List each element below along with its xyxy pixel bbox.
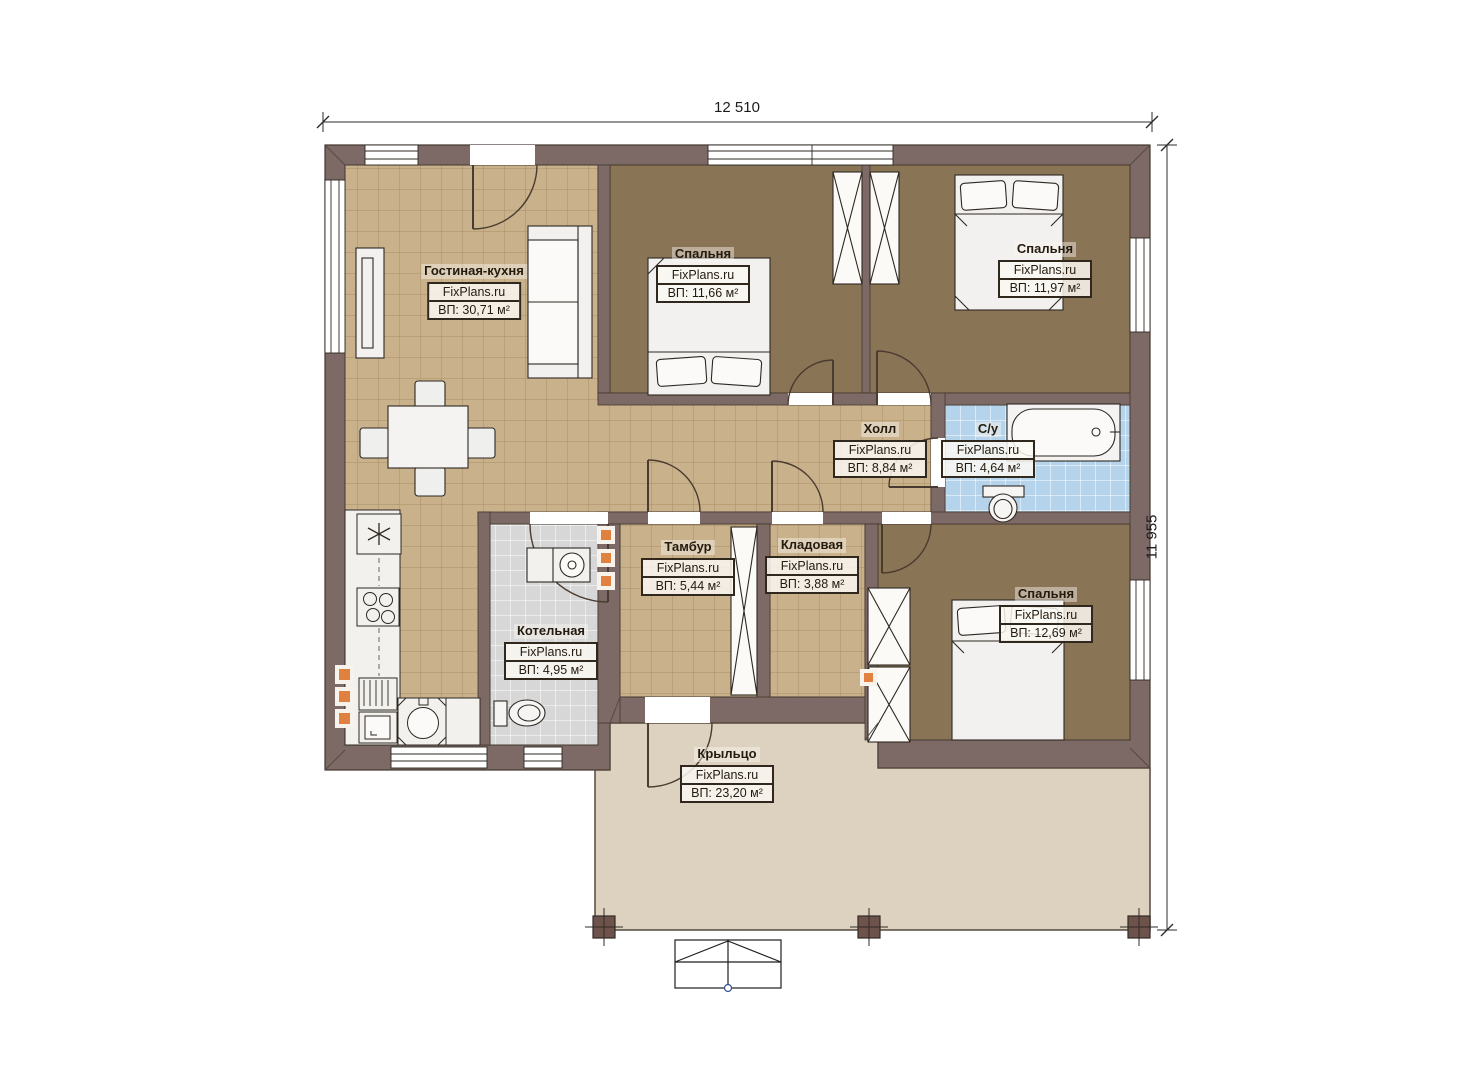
kotelnaya-toilet [494,700,545,726]
watermark: FixPlans.ru [658,267,748,285]
window-bottom-kitchen [391,747,487,768]
corner-sink [398,698,446,745]
window-top-bedrooms [708,145,893,165]
floor-plan-drawing [0,0,1473,1080]
boiler-unit [527,548,590,582]
room-area: ВП: 12,69 м² [1001,625,1091,641]
watermark: FixPlans.ru [506,644,596,662]
watermark: FixPlans.ru [429,284,519,302]
dish-rack [359,678,397,710]
room-area: ВП: 3,88 м² [767,576,857,592]
wardrobe-bedroom1 [833,172,862,284]
room-info-box: FixPlans.ru ВП: 30,71 м² [427,282,521,320]
room-area: ВП: 4,64 м² [943,460,1033,476]
room-label-hall: Холл FixPlans.ru ВП: 8,84 м² [833,420,927,478]
dimension-width-label: 12 510 [714,99,760,116]
wardrobe-bedroom3-a [868,588,910,665]
room-label-bedroom3: Спальня FixPlans.ru ВП: 12,69 м² [999,585,1093,643]
watermark: FixPlans.ru [643,560,733,578]
room-info-box: FixPlans.ru ВП: 11,66 м² [656,265,750,303]
porch-steps [675,940,781,992]
room-label-kladovaya: Кладовая FixPlans.ru ВП: 3,88 м² [765,536,859,594]
watermark: FixPlans.ru [835,442,925,460]
window-bottom-kotelnaya [524,747,562,768]
room-info-box: FixPlans.ru ВП: 4,95 м² [504,642,598,680]
tv-panel [356,248,384,358]
room-area: ВП: 23,20 м² [682,785,772,801]
room-info-box: FixPlans.ru ВП: 3,88 м² [765,556,859,594]
room-name: С/у [975,422,1001,437]
dimension-height-label: 11 955 [1144,515,1161,560]
room-name: Тамбур [661,540,714,555]
room-name: Гостиная-кухня [421,264,527,279]
room-name: Спальня [1015,587,1077,602]
room-label-tambur: Тамбур FixPlans.ru ВП: 5,44 м² [641,538,735,596]
room-info-box: FixPlans.ru ВП: 11,97 м² [998,260,1092,298]
sofa [528,226,592,378]
fridge [357,514,401,554]
watermark: FixPlans.ru [1001,607,1091,625]
room-area: ВП: 5,44 м² [643,578,733,594]
room-info-box: FixPlans.ru ВП: 5,44 м² [641,558,735,596]
room-info-box: FixPlans.ru ВП: 12,69 м² [999,605,1093,643]
watermark: FixPlans.ru [767,558,857,576]
room-area: ВП: 11,97 м² [1000,280,1090,296]
window-right-bedroom-top [1130,238,1150,332]
room-info-box: FixPlans.ru ВП: 8,84 м² [833,440,927,478]
room-name: Спальня [672,247,734,262]
room-area: ВП: 30,71 м² [429,302,519,318]
floor-plan-canvas: 12 510 11 955 Гостиная-кухня FixPlans.ru… [0,0,1473,1080]
watermark: FixPlans.ru [1000,262,1090,280]
room-label-bedroom2: Спальня FixPlans.ru ВП: 11,97 м² [998,240,1092,298]
window-right-bedroom-bottom [1130,580,1150,680]
room-area: ВП: 4,95 м² [506,662,596,678]
room-name: Крыльцо [694,747,759,762]
room-info-box: FixPlans.ru ВП: 4,64 м² [941,440,1035,478]
room-name: Холл [861,422,900,437]
stove [357,588,399,626]
room-label-kotelnaya: Котельная FixPlans.ru ВП: 4,95 м² [504,622,598,680]
window-top-living [365,145,418,165]
room-name: Спальня [1014,242,1076,257]
washing-machine [359,712,397,743]
room-area: ВП: 11,66 м² [658,285,748,301]
window-left-living [325,180,345,353]
watermark: FixPlans.ru [682,767,772,785]
room-area: ВП: 8,84 м² [835,460,925,476]
room-label-bedroom1: Спальня FixPlans.ru ВП: 11,66 м² [656,245,750,303]
watermark: FixPlans.ru [943,442,1033,460]
room-name: Котельная [514,624,588,639]
room-label-living: Гостиная-кухня FixPlans.ru ВП: 30,71 м² [421,262,527,320]
room-info-box: FixPlans.ru ВП: 23,20 м² [680,765,774,803]
radiator-bedroom3-wall [860,669,877,686]
wardrobe-bedroom2 [870,172,899,284]
room-label-bathroom: С/у FixPlans.ru ВП: 4,64 м² [941,420,1035,478]
room-name: Кладовая [778,538,846,553]
room-label-porch: Крыльцо FixPlans.ru ВП: 23,20 м² [680,745,774,803]
radiator-kitchen-wall [335,665,354,728]
radiator-tambur-wall [597,526,615,590]
